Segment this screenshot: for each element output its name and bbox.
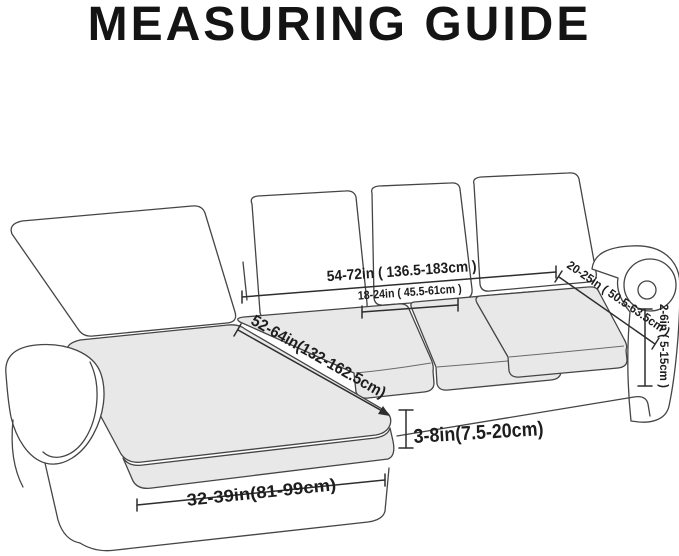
dim-arm-height-label: 2-6in ( 5-15cm )	[657, 304, 669, 388]
dim-seat-height-label: 3-8in(7.5-20cm)	[413, 418, 544, 448]
base-bottom-left-edge	[80, 468, 389, 551]
back-gap-line	[243, 262, 247, 300]
back-cushion-2	[251, 191, 367, 319]
sofa-diagram: 54-72in ( 136.5-183cm ) 18-24in ( 45.5-6…	[0, 0, 679, 556]
back-cushion-1	[11, 206, 236, 336]
left-arm-base-edge	[45, 463, 80, 543]
left-arm	[6, 345, 104, 465]
